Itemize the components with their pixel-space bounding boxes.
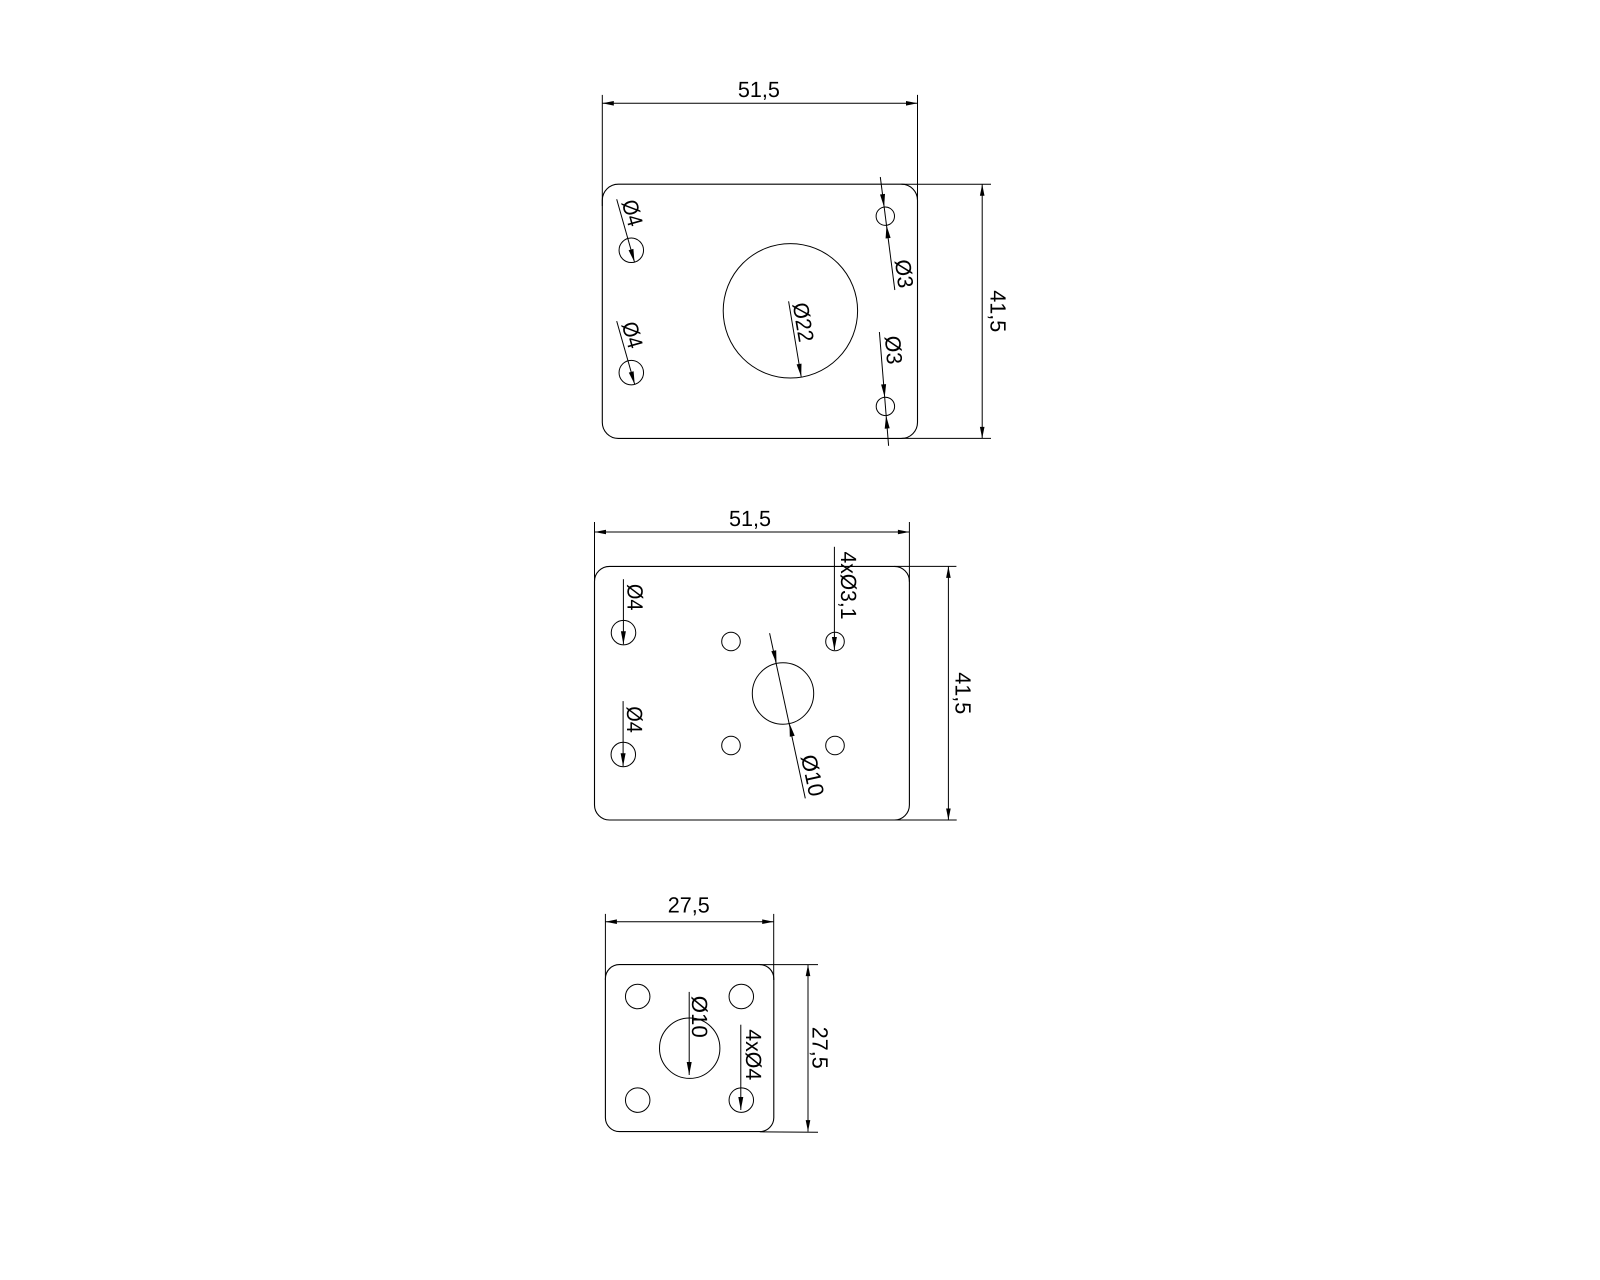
svg-text:Ø4: Ø4 bbox=[617, 319, 648, 351]
svg-text:51,5: 51,5 bbox=[729, 506, 771, 531]
svg-text:Ø10: Ø10 bbox=[687, 996, 712, 1038]
svg-text:Ø3: Ø3 bbox=[880, 335, 907, 365]
svg-text:Ø3: Ø3 bbox=[890, 258, 918, 289]
svg-text:Ø10: Ø10 bbox=[796, 752, 829, 798]
svg-text:27,5: 27,5 bbox=[668, 893, 710, 918]
svg-text:Ø4: Ø4 bbox=[622, 706, 647, 733]
svg-text:41,5: 41,5 bbox=[985, 290, 1010, 332]
svg-text:27,5: 27,5 bbox=[808, 1027, 833, 1069]
svg-text:4xØ4: 4xØ4 bbox=[741, 1029, 766, 1080]
svg-text:41,5: 41,5 bbox=[951, 672, 976, 714]
svg-text:4xØ3,1: 4xØ3,1 bbox=[836, 552, 861, 620]
svg-text:51,5: 51,5 bbox=[738, 77, 780, 102]
svg-text:Ø4: Ø4 bbox=[622, 584, 647, 611]
svg-text:Ø4: Ø4 bbox=[617, 197, 648, 229]
svg-text:Ø22: Ø22 bbox=[788, 301, 819, 344]
